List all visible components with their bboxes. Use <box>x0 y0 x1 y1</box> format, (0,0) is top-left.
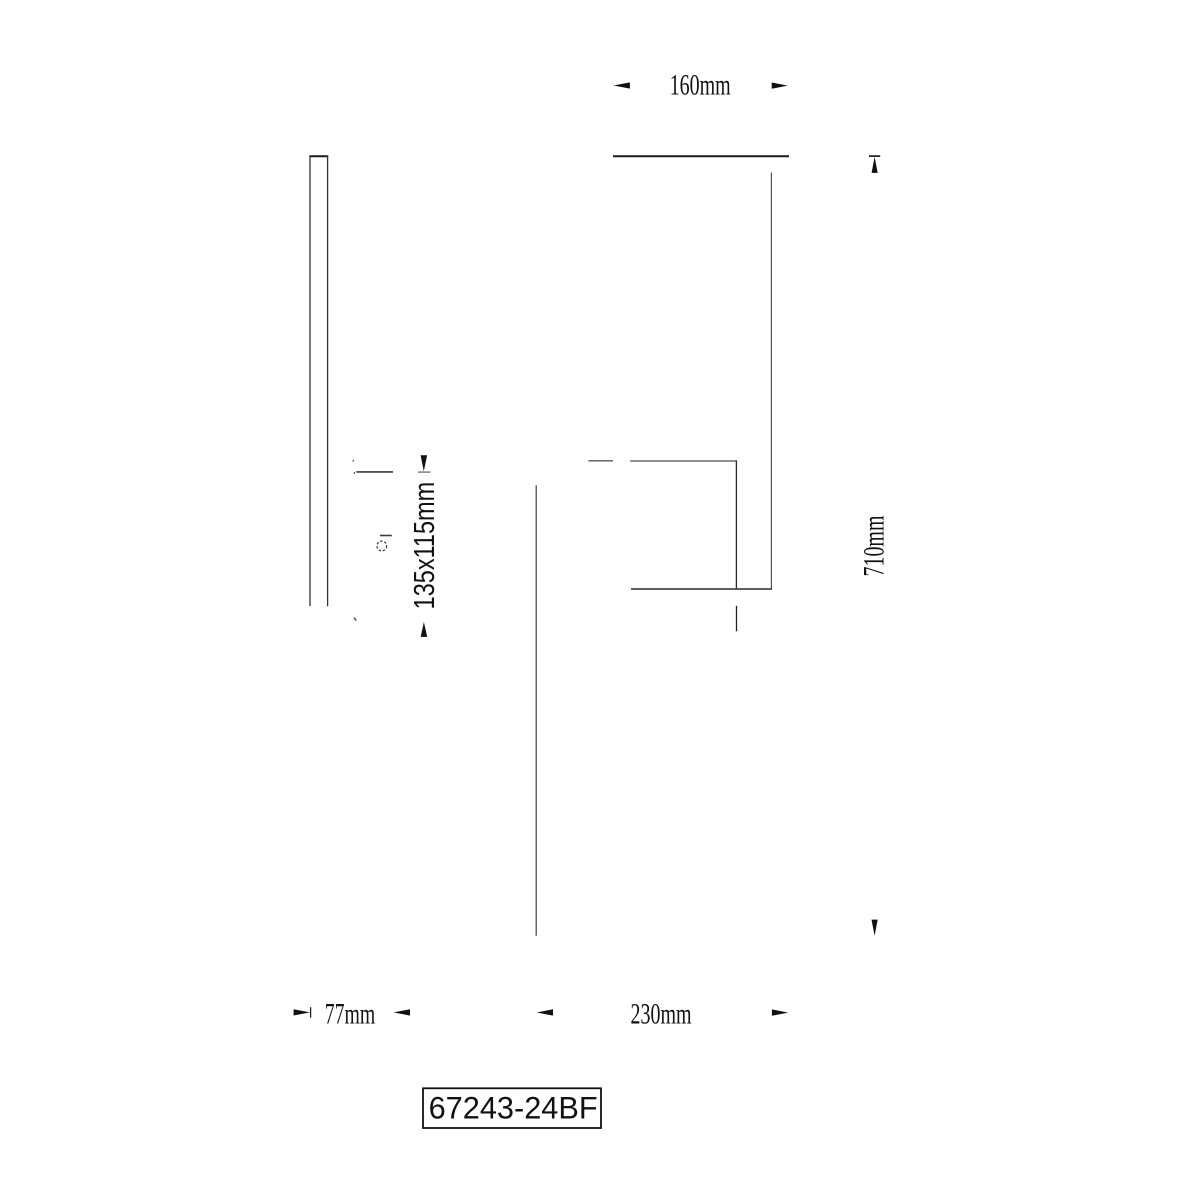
svg-text:135x115mm: 135x115mm <box>409 482 441 610</box>
svg-text:710mm: 710mm <box>859 515 891 576</box>
svg-text:67243-24BF: 67243-24BF <box>429 1090 598 1126</box>
svg-text:230mm: 230mm <box>631 998 692 1030</box>
svg-text:160mm: 160mm <box>670 70 731 102</box>
svg-text:77mm: 77mm <box>325 998 376 1030</box>
